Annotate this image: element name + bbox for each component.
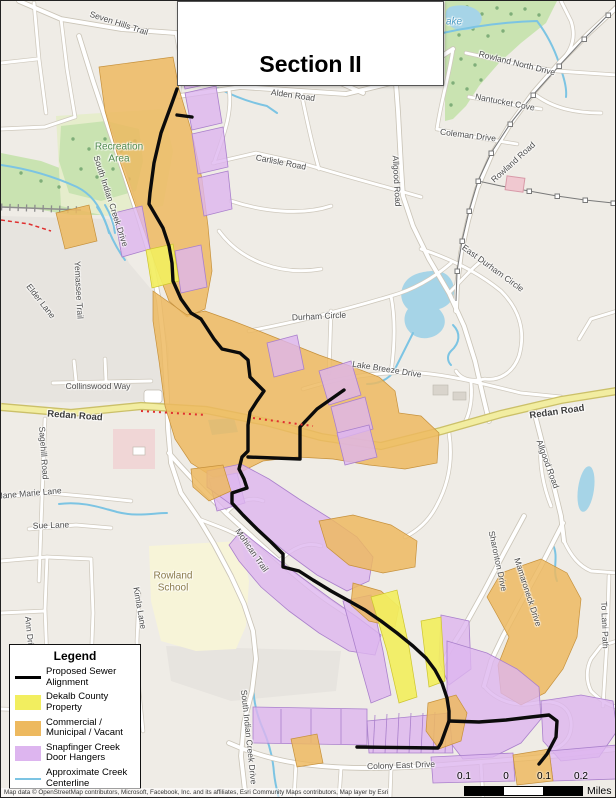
scale-bar: 0.100.10.2 Miles bbox=[446, 771, 616, 798]
legend-box: Legend Proposed Sewer AlignmentDekalb Co… bbox=[9, 644, 141, 789]
attribution: Map data © OpenStreetMap contributors, M… bbox=[1, 788, 391, 797]
page-title: Section II bbox=[259, 51, 361, 78]
title-box: Section II bbox=[177, 1, 444, 86]
legend-label: Approximate Creek Centerline bbox=[46, 768, 135, 789]
scale-tick: 0.2 bbox=[574, 771, 588, 782]
legend-label: Snapfinger Creek Door Hangers bbox=[46, 743, 135, 764]
legend-item: Snapfinger Creek Door Hangers bbox=[15, 743, 135, 764]
map-page: Seven Hills TrailAlden RoadCarlisle Road… bbox=[0, 0, 616, 798]
legend-items: Proposed Sewer AlignmentDekalb County Pr… bbox=[15, 667, 135, 789]
legend-swatch-rect bbox=[15, 721, 41, 736]
legend-swatch-line bbox=[15, 778, 41, 780]
scale-segment bbox=[465, 787, 504, 795]
legend-item: Approximate Creek Centerline bbox=[15, 768, 135, 789]
legend-item: Dekalb County Property bbox=[15, 692, 135, 713]
legend-label: Proposed Sewer Alignment bbox=[46, 667, 135, 688]
legend-label: Dekalb County Property bbox=[46, 692, 135, 713]
legend-item: Commercial / Municipal / Vacant bbox=[15, 718, 135, 739]
legend-item: Proposed Sewer Alignment bbox=[15, 667, 135, 688]
legend-swatch-rect bbox=[15, 695, 41, 710]
scale-tick: 0.1 bbox=[537, 771, 551, 782]
scale-bar-track bbox=[464, 786, 583, 796]
scale-tick: 0.1 bbox=[457, 771, 471, 782]
legend-swatch-rect bbox=[15, 746, 41, 761]
scale-tick: 0 bbox=[503, 771, 509, 782]
legend-swatch-line bbox=[15, 676, 41, 679]
scale-unit-label: Miles bbox=[587, 785, 612, 797]
legend-title: Legend bbox=[15, 649, 135, 663]
scale-segment bbox=[543, 787, 582, 795]
legend-label: Commercial / Municipal / Vacant bbox=[46, 718, 135, 739]
